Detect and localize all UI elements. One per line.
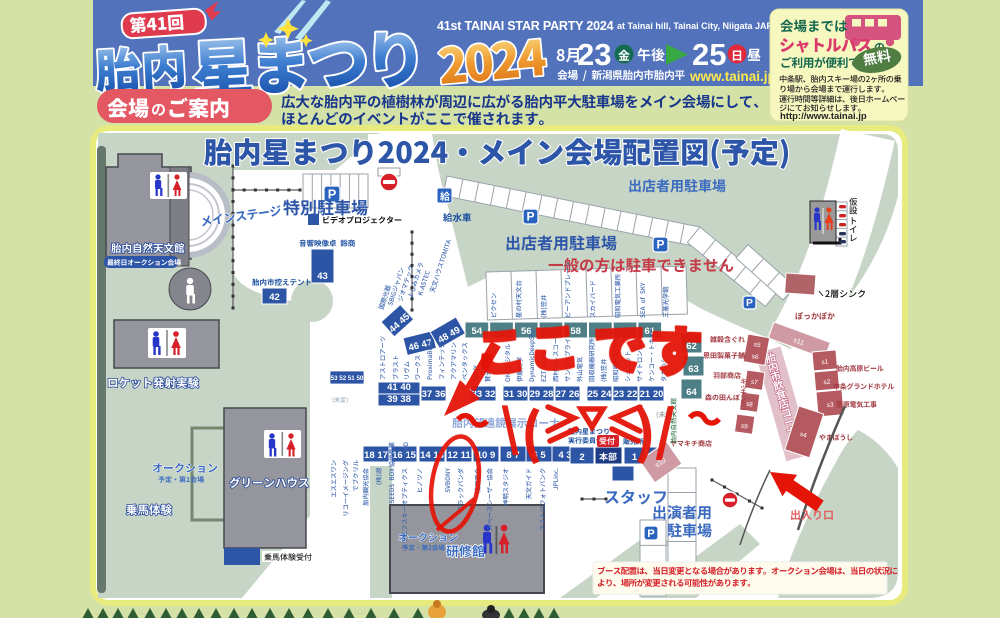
svg-text:www.tainai.jp: www.tainai.jp	[689, 69, 776, 84]
svg-text:1: 1	[632, 452, 638, 463]
svg-text:25 24: 25 24	[588, 389, 612, 400]
svg-text:s9: s9	[740, 423, 748, 431]
svg-text:29 28: 29 28	[530, 389, 554, 400]
svg-text:P: P	[656, 238, 664, 252]
svg-text:54: 54	[472, 326, 483, 337]
svg-text:23 22: 23 22	[614, 389, 638, 400]
svg-text:21 20: 21 20	[640, 389, 664, 400]
svg-text:42: 42	[269, 292, 280, 303]
svg-text:27 26: 27 26	[556, 389, 580, 400]
svg-text:43: 43	[317, 271, 328, 282]
svg-text:64: 64	[686, 387, 697, 398]
svg-text:s3: s3	[826, 401, 834, 409]
svg-text:s2: s2	[823, 379, 831, 387]
svg-text:25: 25	[692, 37, 726, 72]
svg-text:37 36: 37 36	[422, 389, 446, 400]
svg-text:P: P	[746, 298, 753, 309]
svg-text:39 38: 39 38	[387, 394, 411, 405]
svg-text:2: 2	[579, 452, 584, 463]
svg-text:s7: s7	[750, 379, 758, 387]
svg-text:23: 23	[577, 37, 611, 72]
svg-text:18 17: 18 17	[364, 450, 388, 461]
svg-text:at Tainai hill, Tainai City, N: at Tainai hill, Tainai City, Niigata JAP…	[617, 21, 785, 31]
svg-text:12 11: 12 11	[447, 450, 471, 461]
svg-text:41 40: 41 40	[387, 382, 411, 393]
svg-text:53 52 51 50: 53 52 51 50	[331, 375, 364, 382]
svg-text:63: 63	[688, 364, 699, 375]
svg-text:58: 58	[570, 326, 581, 337]
svg-text:P: P	[328, 186, 337, 201]
svg-text:41st TAINAI STAR PARTY 2024: 41st TAINAI STAR PARTY 2024	[437, 19, 614, 33]
svg-text:s1: s1	[821, 359, 829, 367]
svg-text:P: P	[526, 210, 534, 224]
svg-text:P: P	[647, 528, 655, 540]
svg-text:s8: s8	[745, 401, 753, 409]
svg-text:31 30: 31 30	[504, 389, 528, 400]
svg-text:http://www.tainai.jp: http://www.tainai.jp	[780, 111, 867, 122]
